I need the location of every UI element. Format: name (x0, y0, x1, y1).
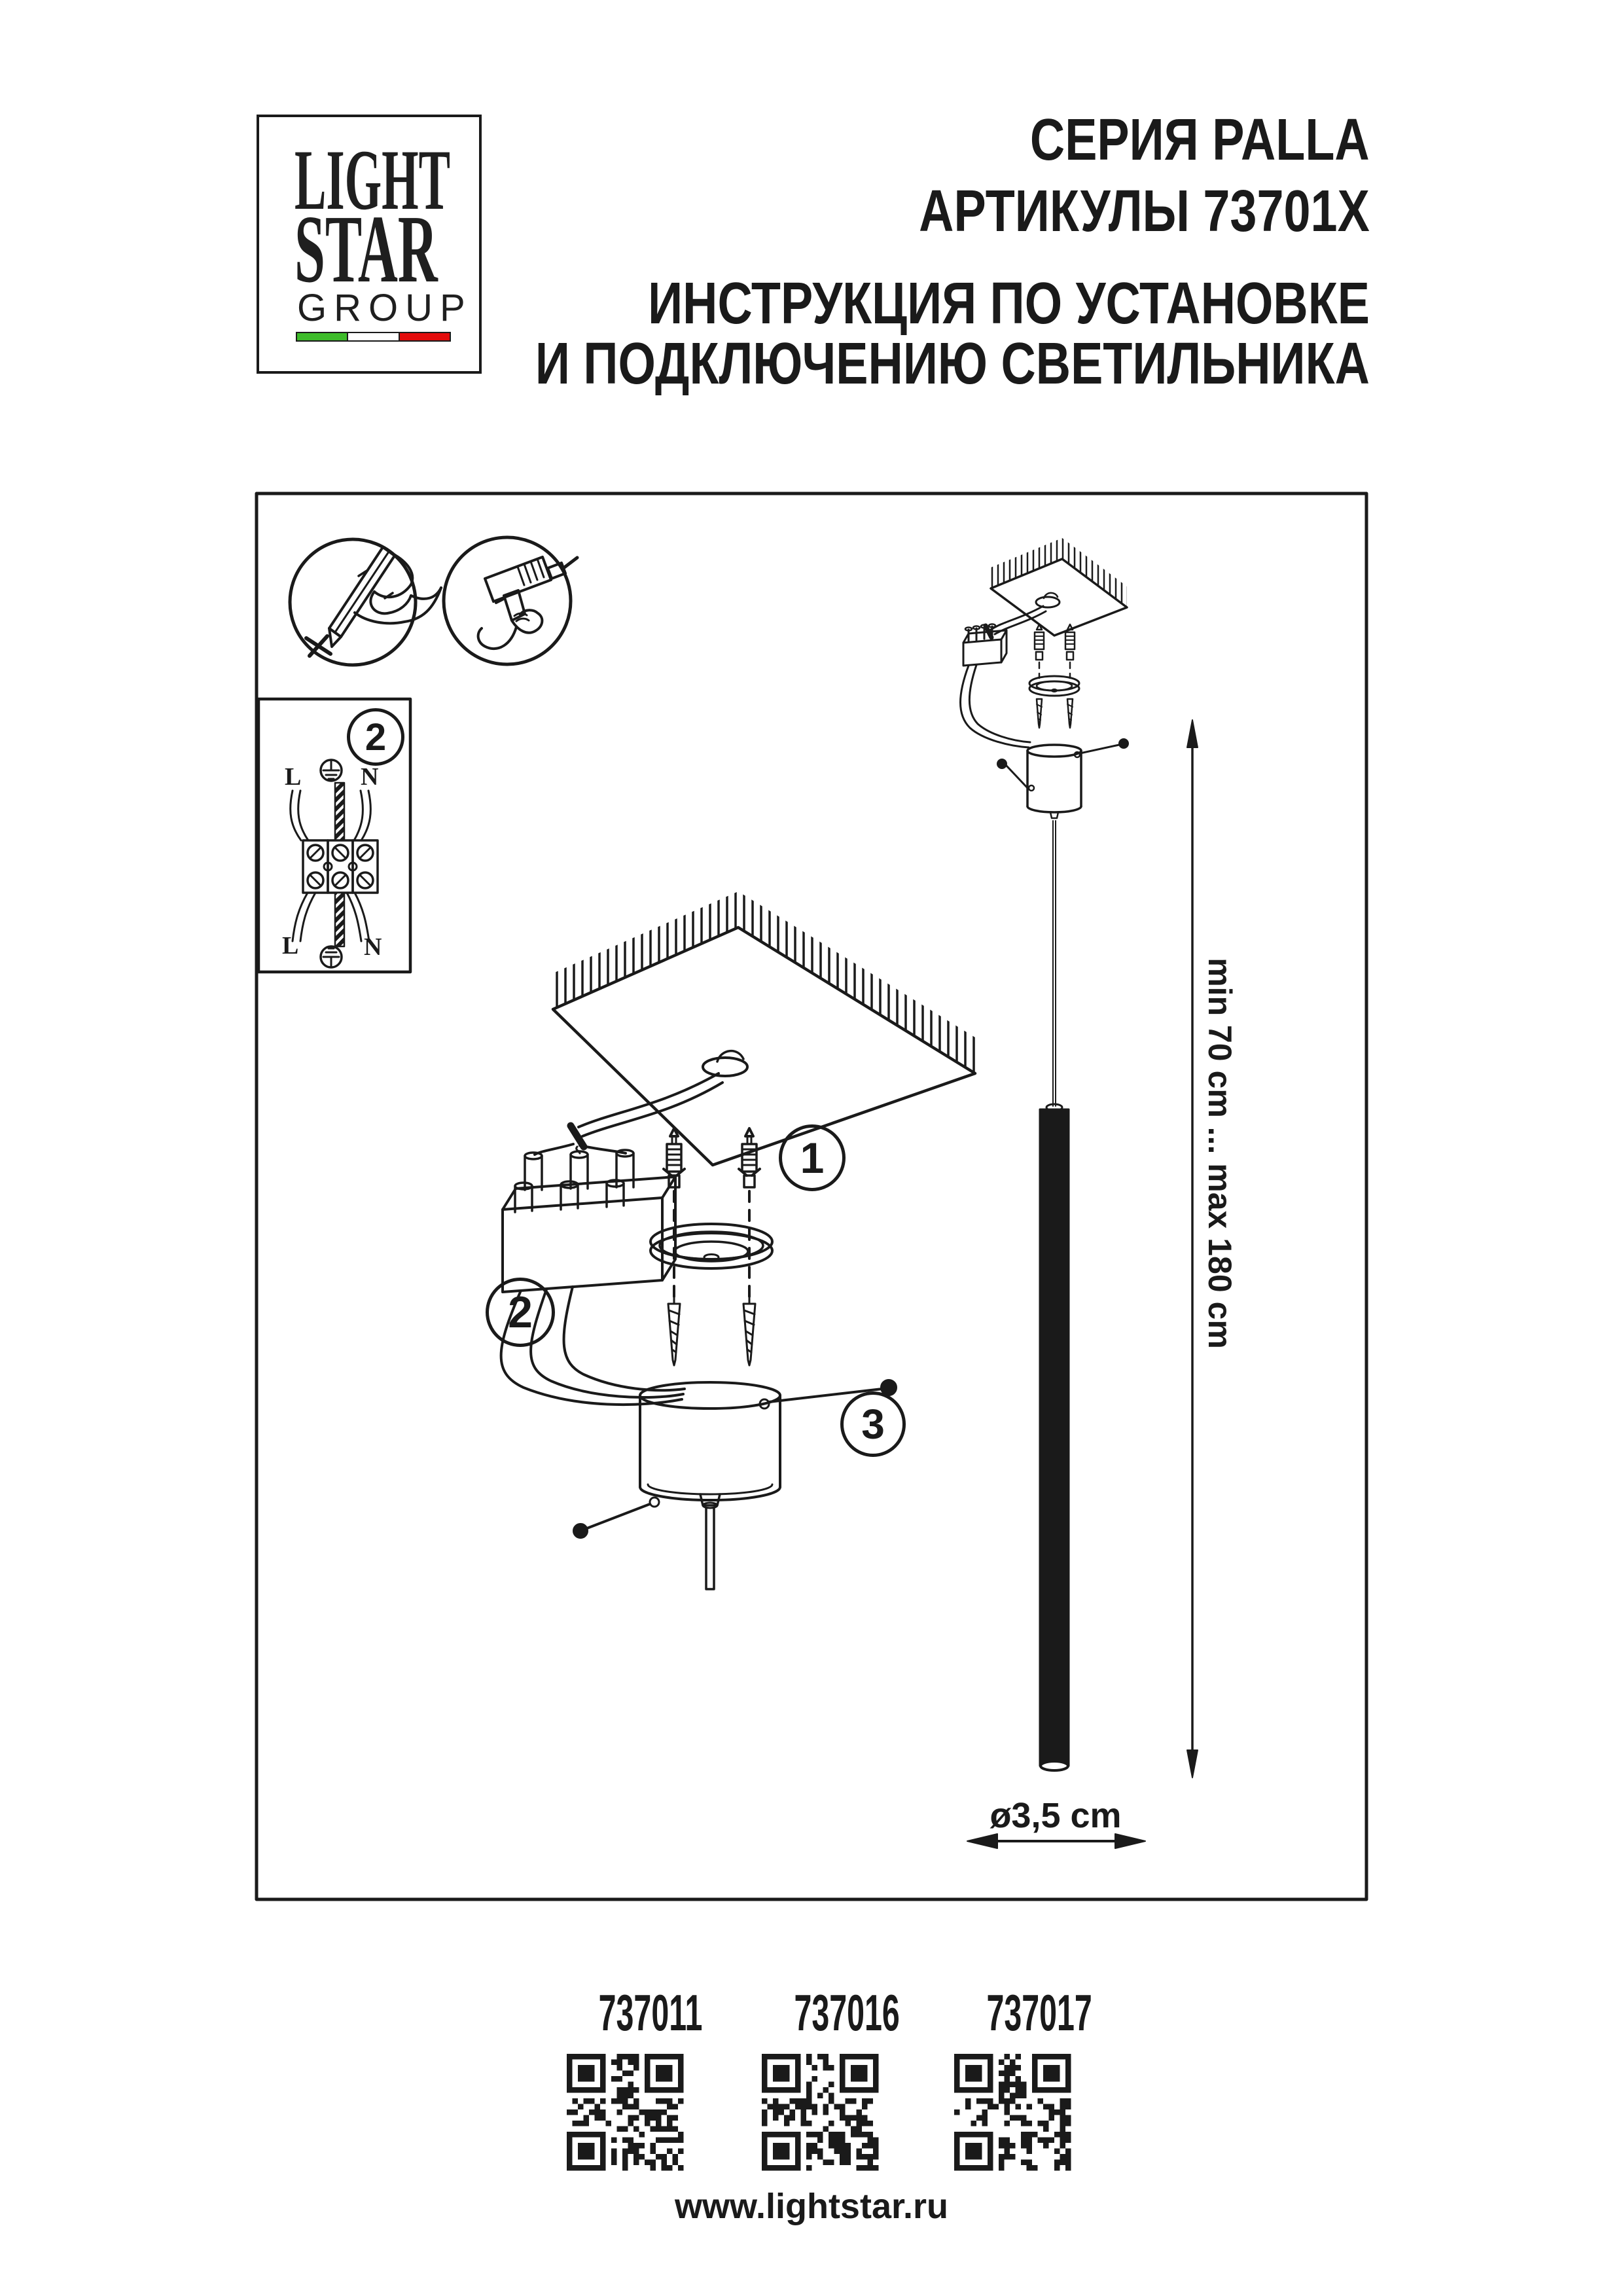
earth-wire (335, 893, 344, 946)
screw (668, 1296, 680, 1365)
earth-ground-icon (321, 946, 342, 967)
drill-icon (444, 537, 577, 664)
diameter-label: ø3,5 cm (990, 1795, 1121, 1836)
earth-wire (335, 783, 344, 840)
mounting-ring (651, 1224, 772, 1268)
website: www.lightstar.ru (675, 2186, 948, 2227)
label-l-top: L (285, 764, 301, 789)
qr-code (954, 2052, 1072, 2174)
qr-code (567, 2052, 685, 2174)
terminal-block-3d (503, 1144, 675, 1292)
pendant-tube (1040, 1109, 1069, 1766)
suspension-cable (1053, 821, 1056, 1106)
product-code: 737017 (954, 1987, 1072, 2038)
assembled-lamp (961, 606, 1128, 1770)
diameter-arrow (967, 1834, 1145, 1848)
qr-code (762, 2052, 880, 2174)
instruction-sheet: LIGHT STAR GROUP СЕРИЯ PALLA АРТИКУЛЫ 73… (0, 0, 1623, 2296)
step-2-badge-wiring: 2 (347, 708, 404, 766)
product-code: 737016 (762, 1987, 880, 2038)
screw (743, 1296, 755, 1365)
step-1-badge: 1 (779, 1124, 846, 1191)
dimension-arrow-vertical (1187, 720, 1198, 1778)
mains-cable (571, 1073, 722, 1147)
diagram-frame (257, 493, 1366, 1899)
step-2-badge: 2 (486, 1278, 555, 1347)
wall-anchor (739, 1128, 760, 1187)
canopy-cylinder (640, 1382, 780, 1589)
dimension-range-label: min 70 cm ... max 180 cm (1201, 958, 1239, 1349)
suspension-cable (706, 1508, 714, 1589)
earth-ground-icon (321, 760, 342, 781)
terminal-block-front (303, 840, 378, 893)
label-n-top: N (361, 764, 378, 789)
pencil-marking-icon (290, 539, 441, 665)
label-l-bottom: L (282, 933, 298, 958)
product-code: 737011 (567, 1987, 685, 2038)
label-n-bottom: N (364, 935, 382, 960)
step-3-badge: 3 (840, 1391, 906, 1457)
